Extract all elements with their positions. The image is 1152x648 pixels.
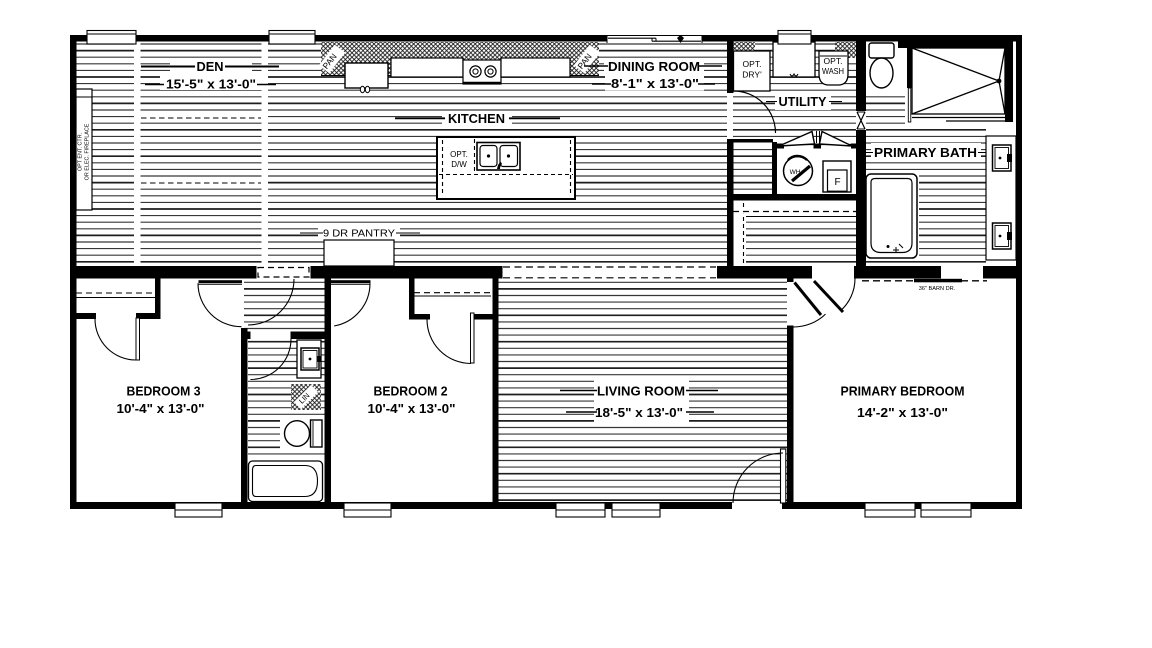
svg-text:BEDROOM 3: BEDROOM 3 [127, 384, 201, 399]
svg-text:OPT.: OPT. [824, 56, 843, 66]
svg-text:PRIMARY BEDROOM: PRIMARY BEDROOM [841, 384, 965, 399]
svg-text:15'-5" x 13'-0": 15'-5" x 13'-0" [166, 78, 256, 92]
svg-text:OPT.: OPT. [450, 150, 468, 159]
svg-text:D/W: D/W [451, 160, 467, 169]
svg-text:BEDROOM 2: BEDROOM 2 [374, 384, 448, 399]
svg-text:LIVING ROOM: LIVING ROOM [597, 384, 685, 399]
svg-text:WASH: WASH [822, 66, 844, 76]
svg-text:10'-4" x 13'-0": 10'-4" x 13'-0" [368, 402, 456, 416]
svg-text:9 DR PANTRY: 9 DR PANTRY [323, 229, 395, 240]
svg-text:10'-4" x 13'-0": 10'-4" x 13'-0" [117, 402, 205, 416]
svg-text:OPT ENT. CTR.: OPT ENT. CTR. [78, 133, 84, 171]
svg-text:WH: WH [790, 169, 801, 176]
svg-text:36" BARN DR.: 36" BARN DR. [919, 286, 956, 292]
svg-text:18'-5" x 13'-0": 18'-5" x 13'-0" [595, 406, 683, 420]
svg-text:DINING ROOM: DINING ROOM [608, 59, 700, 74]
svg-text:F: F [834, 177, 840, 188]
svg-text:DEN: DEN [197, 59, 224, 74]
svg-text:PRIMARY BATH: PRIMARY BATH [874, 145, 977, 160]
svg-text:8'-1" x 13'-0": 8'-1" x 13'-0" [611, 77, 699, 91]
svg-text:UTILITY: UTILITY [779, 94, 827, 109]
svg-text:OR ELEC. FIREPLACE: OR ELEC. FIREPLACE [85, 123, 91, 180]
svg-text:KITCHEN: KITCHEN [448, 111, 505, 126]
svg-text:DRY': DRY' [742, 70, 762, 80]
svg-text:14'-2" x 13'-0": 14'-2" x 13'-0" [857, 406, 948, 420]
svg-text:OPT.: OPT. [743, 59, 762, 69]
